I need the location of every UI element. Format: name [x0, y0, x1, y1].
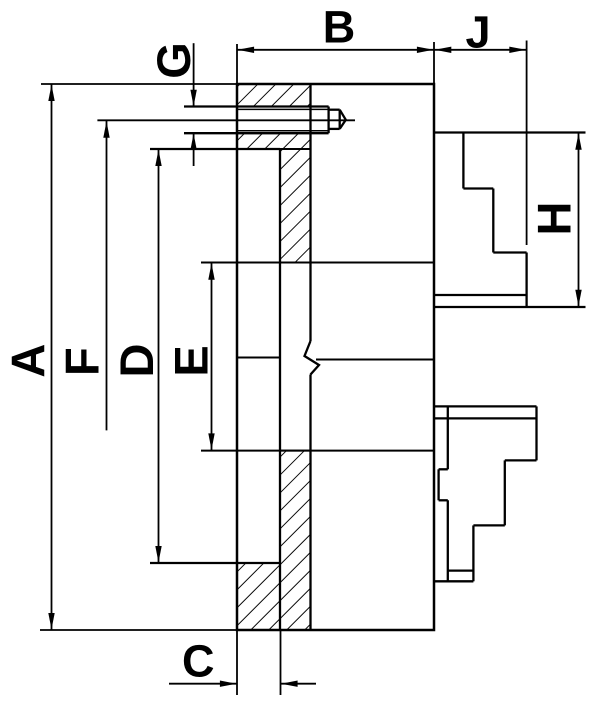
svg-text:F: F [56, 347, 109, 376]
svg-text:G: G [147, 42, 200, 79]
svg-text:C: C [182, 636, 215, 687]
svg-text:E: E [165, 345, 218, 376]
svg-text:H: H [528, 202, 581, 236]
svg-text:D: D [110, 344, 163, 378]
svg-text:B: B [323, 2, 356, 53]
svg-text:J: J [465, 7, 490, 58]
svg-text:A: A [2, 344, 55, 378]
